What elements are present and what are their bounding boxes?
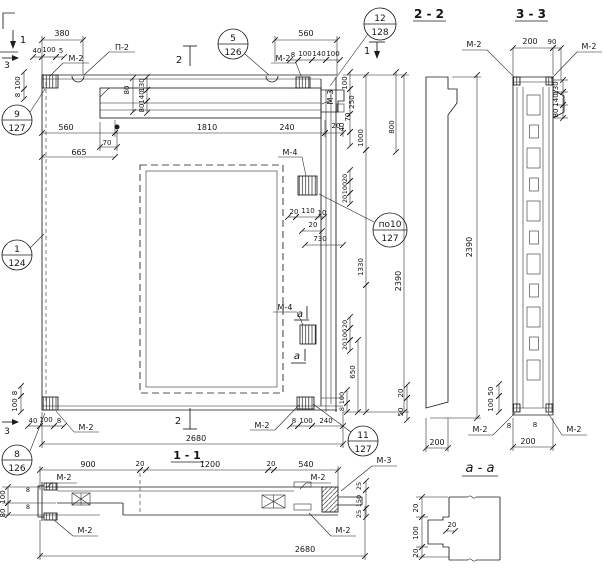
- elevation-dim-8: 8: [338, 407, 346, 411]
- embed-m4-top: [298, 176, 317, 195]
- cut-letter-a-lower: а: [294, 351, 300, 362]
- callout-12-128-position: 12: [374, 14, 385, 24]
- embed-label-m4-top: М-4: [283, 148, 298, 157]
- embed-label-m2-33-topright: М-2: [582, 42, 597, 51]
- embed-m3-block: [322, 487, 338, 512]
- embed-label-m4-bottom: М-4: [278, 303, 293, 312]
- callout-9-127-position: 9: [14, 110, 20, 120]
- callout-1-124: 1124: [2, 240, 32, 270]
- embed-label-m2-topmid: М-2: [276, 54, 291, 63]
- elevation-dim-20: 20: [341, 320, 349, 328]
- technical-drawing: 380401005М-2П-25608100140100М-2100880130…: [0, 0, 609, 577]
- section_1_1-dim-20: 20: [267, 460, 276, 468]
- section_1_1-dim-20: 20: [136, 460, 145, 468]
- elevation-dim-40: 40: [33, 47, 42, 55]
- section-a-a-title: а - а: [466, 461, 495, 476]
- elevation-dim-100: 100: [298, 50, 311, 58]
- embed-label-m2-botleft: М-2: [79, 423, 94, 432]
- dim-200-section22: 200: [429, 438, 444, 447]
- section_2_2-dim-20: 20: [397, 389, 405, 398]
- embed-label-m2-11-botright: М-2: [336, 526, 351, 535]
- callout-11-127-sheet: 127: [354, 445, 371, 455]
- section_1_1-dim-540: 540: [298, 460, 313, 469]
- section_1_1-dim-80: 80: [0, 509, 7, 518]
- section_1_1-dim-8: 8: [26, 503, 30, 511]
- elevation-dim-70: 70: [103, 139, 112, 147]
- callout-8-126-sheet: 126: [8, 464, 25, 474]
- embed-label-m2-33-topleft: М-2: [467, 40, 482, 49]
- embed-m2-botmid: [297, 397, 314, 409]
- elevation-dim-8: 8: [11, 391, 19, 395]
- dim-2390-elevation: 2390: [394, 271, 403, 291]
- section_a_a-dim-20: 20: [412, 549, 420, 558]
- elevation-dim-100: 100: [14, 76, 22, 89]
- section_3_3-dim-8: 8: [533, 421, 537, 429]
- embed-m2-botleft: [42, 397, 58, 410]
- elevation-dim-100: 100: [299, 417, 312, 425]
- cut-letter-a-upper: а: [297, 309, 303, 320]
- callout-5-126-position: 5: [230, 34, 236, 44]
- embed-m2-topmid: [296, 77, 310, 88]
- cut-mark-2-bottom: 2: [175, 416, 181, 427]
- callout-9-127-sheet: 127: [8, 124, 25, 134]
- elevation-dim-800: 800: [388, 120, 396, 133]
- section-3-3-title: 3 - 3: [516, 7, 546, 21]
- cut-mark-2-top: 2: [176, 55, 182, 66]
- embed-label-m2-33-botright: М-2: [567, 425, 582, 434]
- embed-label-m3-11: М-3: [377, 456, 392, 465]
- section_3_3-dim-8: 8: [507, 422, 511, 430]
- cut-mark-3-top: 3: [4, 61, 10, 71]
- cut-mark-3-bottom: 3: [4, 427, 10, 437]
- section_1_1-dim-8: 8: [26, 486, 30, 494]
- section_3_3-dim-50: 50: [487, 387, 495, 396]
- dim-200-section33: 200: [520, 437, 535, 446]
- embed-label-m2-11-topleft: М-2: [57, 473, 72, 482]
- drawing-sheet: 380401005М-2П-25608100140100М-2100880130…: [0, 0, 609, 577]
- elevation-dim-70: 70: [344, 113, 352, 122]
- elevation-dim-100: 100: [338, 392, 346, 404]
- section_1_1-dim-1200: 1200: [200, 460, 220, 469]
- elevation-dim-240: 240: [279, 123, 294, 132]
- dim-560-inner: 560: [58, 123, 73, 132]
- section_a_a-dim-20: 20: [448, 521, 457, 529]
- callout-5-126-sheet: 126: [224, 48, 241, 58]
- elevation-dim-100: 100: [341, 329, 349, 341]
- elevation-dim-20: 20: [341, 195, 349, 203]
- elevation-dim-8: 8: [291, 51, 295, 59]
- section_a_a-dim-100: 100: [412, 526, 420, 539]
- section_1_1-dim-150: 150: [355, 495, 363, 507]
- callout-12-128-sheet: 128: [371, 28, 388, 38]
- elevation-dim-100: 100: [42, 46, 55, 54]
- section_1_1-dim-100: 100: [0, 490, 7, 503]
- elevation-dim-20: 20: [332, 122, 341, 130]
- elevation-dim-8: 8: [57, 417, 61, 425]
- elevation-dim-100: 100: [326, 50, 339, 58]
- section_3_3-dim-200: 200: [522, 37, 537, 46]
- elevation-dim-8: 8: [292, 417, 296, 425]
- elevation-dim-730: 730: [313, 235, 326, 243]
- dim-380-top: 380: [54, 29, 69, 38]
- elevation-dim-20: 20: [290, 208, 299, 216]
- section_3_3-dim-90: 90: [548, 38, 557, 46]
- callout-1-124-position: 1: [14, 245, 20, 255]
- embed-m4-bottom: [300, 325, 316, 344]
- connector-flange-bottom: [44, 513, 57, 520]
- callout-po10-127-position: по10: [379, 220, 402, 230]
- elevation-dim-80: 80: [138, 104, 146, 113]
- elevation-dim-20: 20: [341, 342, 349, 350]
- elevation-dim-100: 100: [11, 398, 19, 411]
- embed-label-m2-33-botleft: М-2: [473, 425, 488, 434]
- cut-mark-1-topleft: 1: [20, 35, 26, 46]
- callout-8-126: 8126: [2, 445, 32, 475]
- section_1_1-dim-25: 25: [355, 510, 363, 518]
- elevation-dim-20: 20: [341, 174, 349, 182]
- callout-8-126-position: 8: [14, 450, 20, 460]
- dim-560-top: 560: [298, 29, 313, 38]
- dim-665: 665: [71, 148, 86, 157]
- cut-mark-1-right: 1: [364, 46, 370, 57]
- elevation-dim-100: 100: [341, 76, 349, 89]
- callout-5-126: 5126: [218, 29, 248, 59]
- elevation-dim-8: 8: [14, 93, 22, 97]
- callout-po10-127-sheet: 127: [381, 234, 398, 244]
- elevation-dim-1000: 1000: [357, 129, 365, 147]
- embed-label-m2-11-topright: М-2: [311, 473, 326, 482]
- elevation-dim-40: 40: [29, 417, 38, 425]
- section_3_3-dim-140: 140: [552, 93, 560, 106]
- elevation-dim-650: 650: [349, 365, 357, 378]
- elevation-dim-5: 5: [59, 47, 63, 55]
- elevation-dim-80: 80: [123, 86, 131, 95]
- section-1-1-title: 1 - 1: [173, 449, 201, 462]
- elevation-dim-240: 240: [319, 417, 332, 425]
- elevation-dim-140: 140: [312, 50, 325, 58]
- callout-1-124-sheet: 124: [8, 259, 25, 269]
- embed-m2-topleft: [42, 75, 58, 88]
- elevation-dim-1330: 1330: [357, 258, 365, 276]
- dim-2680-section11: 2680: [295, 545, 315, 554]
- elevation-dim-250: 250: [348, 95, 356, 108]
- embed-m2-33-bl: [513, 404, 520, 412]
- elevation-dim-20: 20: [309, 221, 318, 229]
- dim-2390-section22: 2390: [465, 237, 474, 257]
- section_3_3-dim-130: 130: [552, 81, 560, 94]
- embed-m2-33-br: [546, 404, 553, 412]
- section_1_1-dim-900: 900: [80, 460, 95, 469]
- section_3_3-dim-80: 80: [552, 109, 560, 118]
- elevation-dim-100: 100: [39, 416, 52, 424]
- callout-9-127: 9127: [2, 105, 32, 135]
- embed-m2-33-tl: [513, 77, 520, 85]
- loop-label-p2: П-2: [115, 43, 129, 52]
- elevation-dim-130: 130: [138, 78, 146, 91]
- section-2-2-title: 2 - 2: [414, 7, 444, 21]
- section_1_1-dim-25: 25: [355, 482, 363, 490]
- dim-2680-elevation: 2680: [186, 434, 206, 443]
- embed-label-m2-botmid: М-2: [255, 421, 270, 430]
- dim-1810: 1810: [197, 123, 217, 132]
- elevation-dim-110: 110: [301, 207, 314, 215]
- callout-11-127: 11127: [348, 426, 378, 456]
- elevation-dim-10: 10: [318, 209, 327, 217]
- elevation-dim-140: 140: [138, 90, 146, 103]
- embed-label-m3-edge: М-3: [326, 90, 335, 105]
- callout-11-127-position: 11: [357, 431, 368, 441]
- section_2_2-dim-50: 50: [397, 408, 405, 417]
- embed-label-m2-topleft: М-2: [69, 54, 84, 63]
- embed-label-m2-11-botleft: М-2: [78, 526, 93, 535]
- section_3_3-dim-100: 100: [487, 398, 495, 411]
- section_a_a-dim-20: 20: [412, 504, 420, 513]
- elevation-dim-100: 100: [341, 182, 349, 194]
